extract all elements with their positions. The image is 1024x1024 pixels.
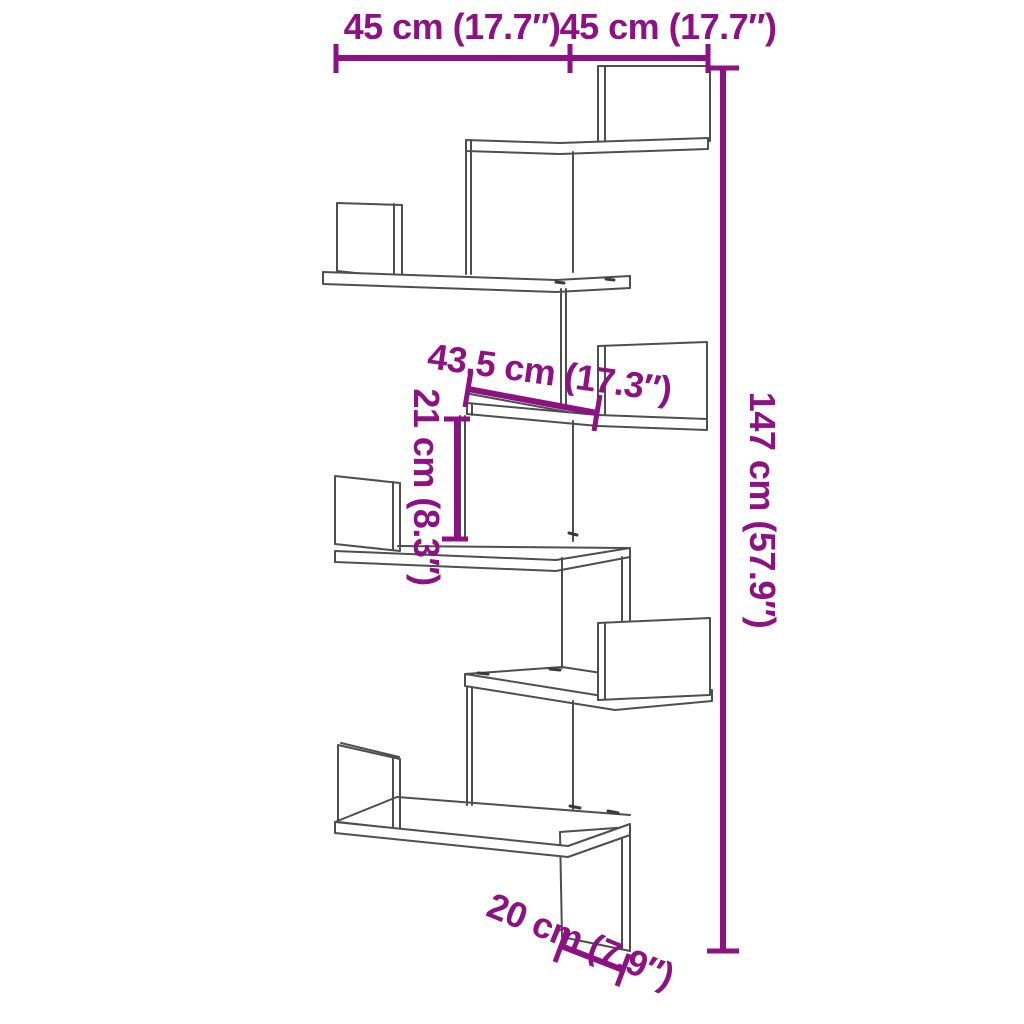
dim-label-top-width-left: 45 cm (17.7″) (344, 6, 561, 47)
left-panel-2 (335, 476, 400, 551)
shelf-board-1 (466, 138, 708, 154)
left-panel-1 (337, 203, 402, 278)
dimension-diagram: 45 cm (17.7″) 45 cm (17.7″) 147 cm (57.9… (0, 0, 1024, 1024)
shelf-board-4 (335, 548, 630, 571)
shelf-board-2 (323, 272, 630, 292)
dimension-top-width: 45 cm (17.7″) 45 cm (17.7″) (336, 6, 776, 73)
board6-back-edge (397, 797, 630, 815)
right-panel-top (598, 66, 710, 143)
dimension-total-height: 147 cm (57.9″) (707, 68, 783, 951)
shelf-board-6 (335, 822, 630, 857)
shelf-drawing (323, 66, 712, 951)
dim-label-total-height: 147 cm (57.9″) (742, 392, 783, 628)
dim-label-top-width-right: 45 cm (17.7″) (560, 6, 777, 47)
board4-mount-marks (569, 533, 577, 535)
dim-label-shelf-gap: 21 cm (8.3″) (406, 388, 447, 585)
right-panel-3 (598, 618, 710, 700)
corner-shelf-diagram-svg: 45 cm (17.7″) 45 cm (17.7″) 147 cm (57.9… (0, 0, 1024, 1024)
